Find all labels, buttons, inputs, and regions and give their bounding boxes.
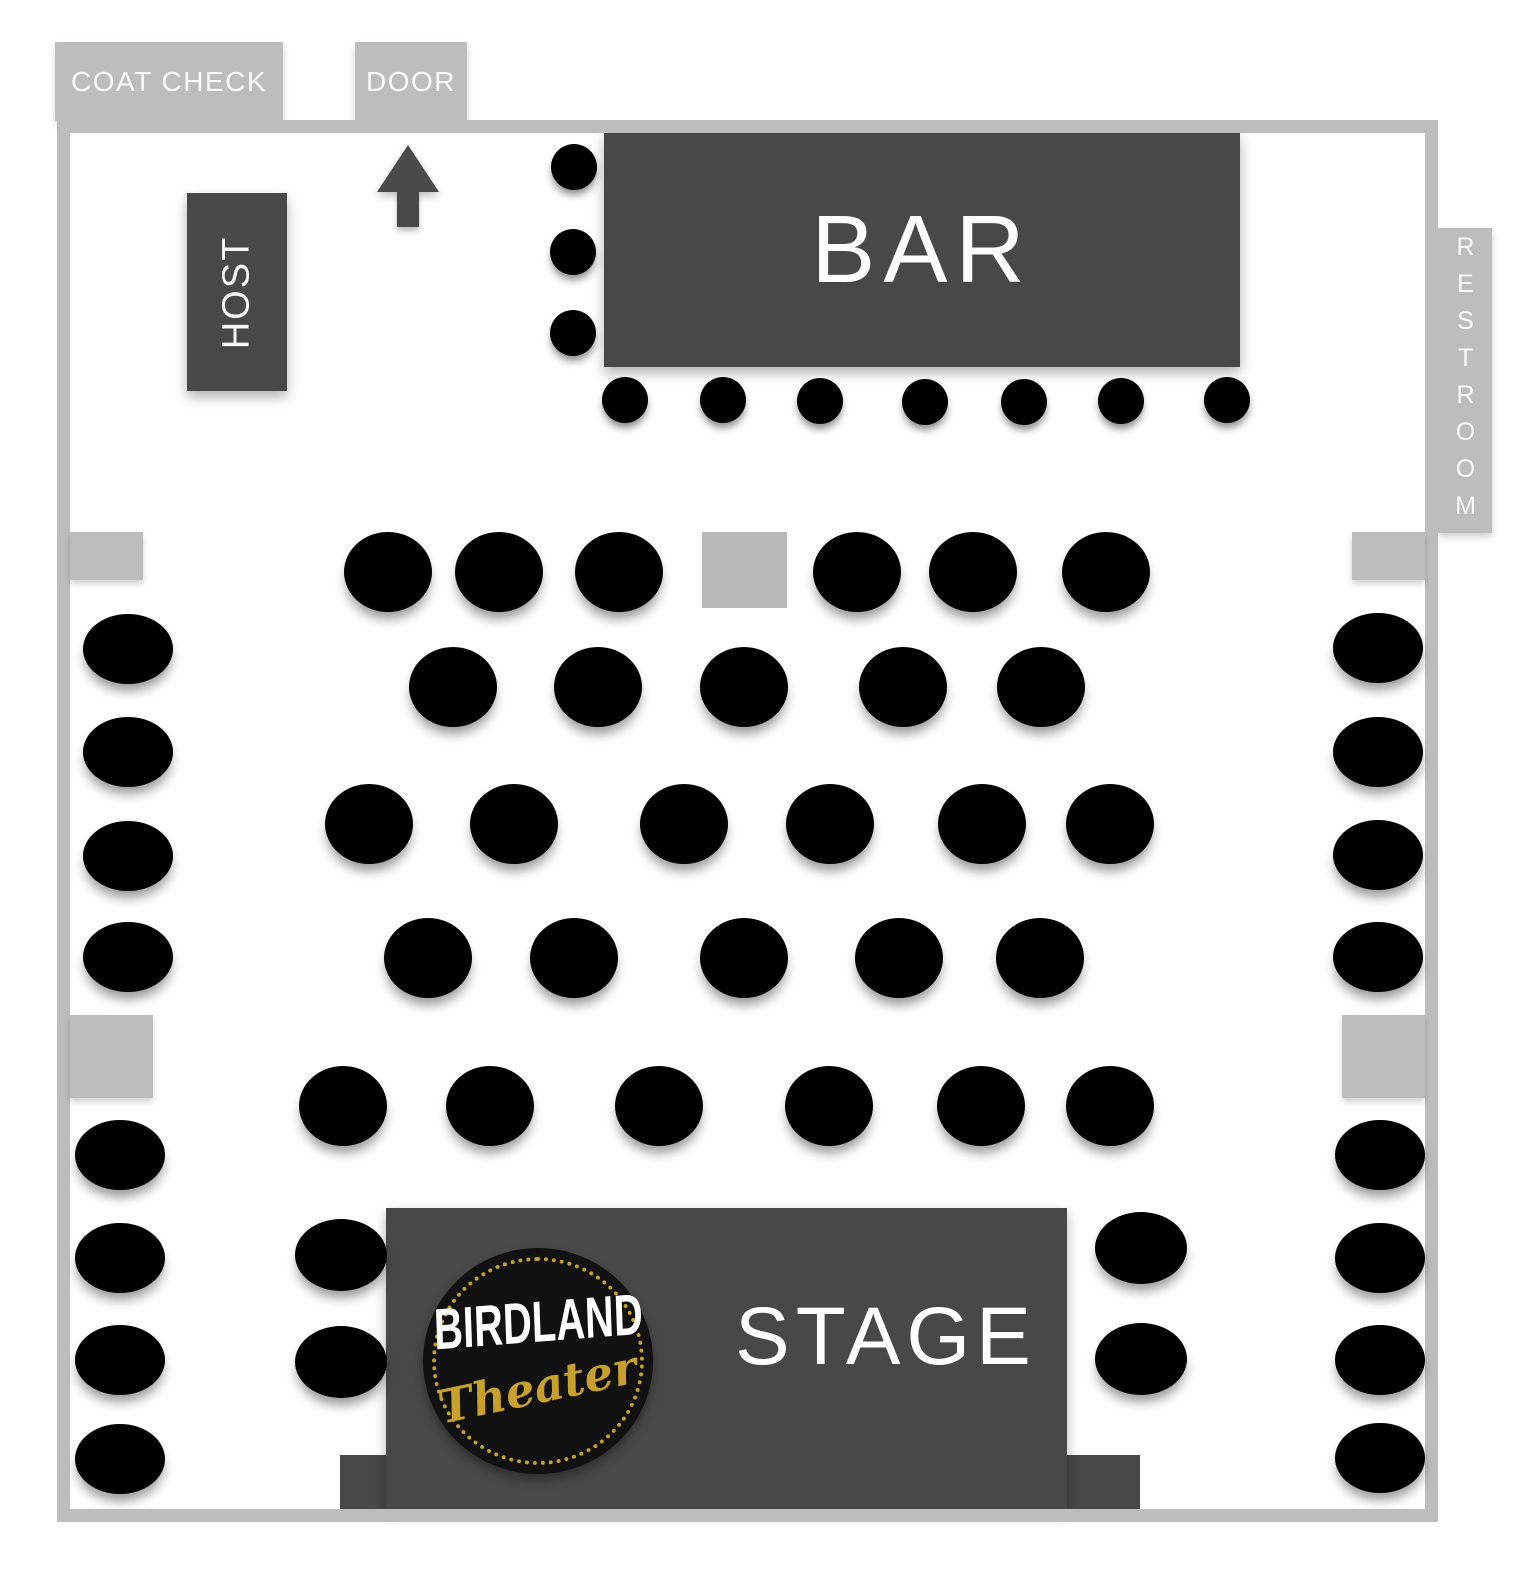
bottom-wall bbox=[57, 1509, 1438, 1522]
row-d-seat[interactable] bbox=[530, 918, 618, 998]
row-d-seat[interactable] bbox=[996, 918, 1084, 998]
wall-pillar-3 bbox=[70, 1015, 153, 1098]
row-e-seat[interactable] bbox=[937, 1066, 1025, 1146]
birdland-theater-logo: BIRDLAND Theater bbox=[423, 1248, 653, 1474]
bar-front-stool-seat[interactable] bbox=[602, 377, 648, 423]
left-wall-upper-seat[interactable] bbox=[83, 614, 173, 684]
row-c-seat[interactable] bbox=[938, 784, 1026, 864]
row-e-seat[interactable] bbox=[299, 1066, 387, 1146]
row-b-seat[interactable] bbox=[859, 647, 947, 727]
bar-side-stool-seat[interactable] bbox=[550, 229, 596, 275]
bar-front-stool-seat[interactable] bbox=[1001, 379, 1047, 425]
right-wall-upper-seat[interactable] bbox=[1333, 613, 1423, 683]
host-stand: HOST bbox=[187, 193, 287, 391]
coat-check-area: COAT CHECK bbox=[55, 42, 283, 121]
bar-front-stool-seat[interactable] bbox=[1098, 378, 1144, 424]
left-wall-lower-seat[interactable] bbox=[75, 1223, 165, 1293]
floor-plan: COAT CHECK DOOR RESTROOM HOST BAR STAGE … bbox=[0, 0, 1530, 1570]
row-d-seat[interactable] bbox=[384, 918, 472, 998]
right-wall-lower-seat[interactable] bbox=[1335, 1423, 1425, 1493]
row-c-seat[interactable] bbox=[786, 784, 874, 864]
bar-front-stool-seat[interactable] bbox=[1204, 377, 1250, 423]
top-wall bbox=[57, 120, 1438, 133]
sound-booth-square bbox=[702, 532, 787, 608]
right-wall-lower-seat[interactable] bbox=[1335, 1223, 1425, 1293]
row-c-seat[interactable] bbox=[470, 784, 558, 864]
row-b-seat[interactable] bbox=[700, 647, 788, 727]
host-label: HOST bbox=[216, 235, 259, 349]
stage-right-seat[interactable] bbox=[1095, 1212, 1187, 1284]
arrow-stem bbox=[397, 191, 419, 227]
restroom-area: RESTROOM bbox=[1438, 228, 1492, 533]
bar-front-stool-seat[interactable] bbox=[700, 377, 746, 423]
stage-left-seat[interactable] bbox=[295, 1219, 387, 1291]
row-a-seat[interactable] bbox=[455, 532, 543, 612]
restroom-label: RESTROOM bbox=[1453, 233, 1478, 529]
row-c-seat[interactable] bbox=[1066, 784, 1154, 864]
row-e-seat[interactable] bbox=[446, 1066, 534, 1146]
bar-side-stool-seat[interactable] bbox=[551, 144, 597, 190]
left-wall bbox=[57, 120, 70, 1522]
right-wall-lower-seat[interactable] bbox=[1335, 1325, 1425, 1395]
row-e-seat[interactable] bbox=[1066, 1066, 1154, 1146]
row-c-seat[interactable] bbox=[325, 784, 413, 864]
row-a-seat[interactable] bbox=[1062, 532, 1150, 612]
row-a-seat[interactable] bbox=[575, 532, 663, 612]
right-wall-upper-seat[interactable] bbox=[1333, 922, 1423, 992]
row-a-seat[interactable] bbox=[813, 532, 901, 612]
bar-front-stool-seat[interactable] bbox=[797, 378, 843, 424]
coat-check-label: COAT CHECK bbox=[71, 66, 267, 98]
row-a-seat[interactable] bbox=[344, 532, 432, 612]
row-e-seat[interactable] bbox=[615, 1066, 703, 1146]
left-wall-upper-seat[interactable] bbox=[83, 717, 173, 787]
row-a-seat[interactable] bbox=[929, 532, 1017, 612]
left-wall-upper-seat[interactable] bbox=[83, 922, 173, 992]
row-b-seat[interactable] bbox=[997, 647, 1085, 727]
stage-label: STAGE bbox=[735, 1290, 1025, 1384]
row-e-seat[interactable] bbox=[785, 1066, 873, 1146]
stage-left-seat[interactable] bbox=[295, 1326, 387, 1398]
door-label: DOOR bbox=[366, 66, 456, 98]
door-area: DOOR bbox=[355, 42, 467, 121]
left-wall-lower-seat[interactable] bbox=[75, 1325, 165, 1395]
row-d-seat[interactable] bbox=[700, 918, 788, 998]
right-wall-lower-seat[interactable] bbox=[1335, 1120, 1425, 1190]
bar-side-stool-seat[interactable] bbox=[550, 310, 596, 356]
row-b-seat[interactable] bbox=[554, 647, 642, 727]
wall-pillar-4 bbox=[1342, 1015, 1425, 1098]
entrance-arrow-icon bbox=[377, 145, 439, 227]
bar-front-stool-seat[interactable] bbox=[902, 379, 948, 425]
right-wall-upper-seat[interactable] bbox=[1333, 820, 1423, 890]
left-wall-upper-seat[interactable] bbox=[83, 821, 173, 891]
right-wall-upper-seat[interactable] bbox=[1333, 717, 1423, 787]
right-wall bbox=[1425, 120, 1438, 1522]
row-b-seat[interactable] bbox=[409, 647, 497, 727]
left-wall-lower-seat[interactable] bbox=[75, 1120, 165, 1190]
stage-right-seat[interactable] bbox=[1095, 1323, 1187, 1395]
left-wall-lower-seat[interactable] bbox=[75, 1424, 165, 1494]
bar-label: BAR bbox=[811, 195, 1032, 305]
row-d-seat[interactable] bbox=[855, 918, 943, 998]
wall-pillar-1 bbox=[70, 532, 143, 580]
wall-pillar-2 bbox=[1352, 532, 1425, 580]
arrow-head bbox=[377, 145, 439, 192]
row-c-seat[interactable] bbox=[640, 784, 728, 864]
bar-area: BAR bbox=[604, 132, 1240, 367]
